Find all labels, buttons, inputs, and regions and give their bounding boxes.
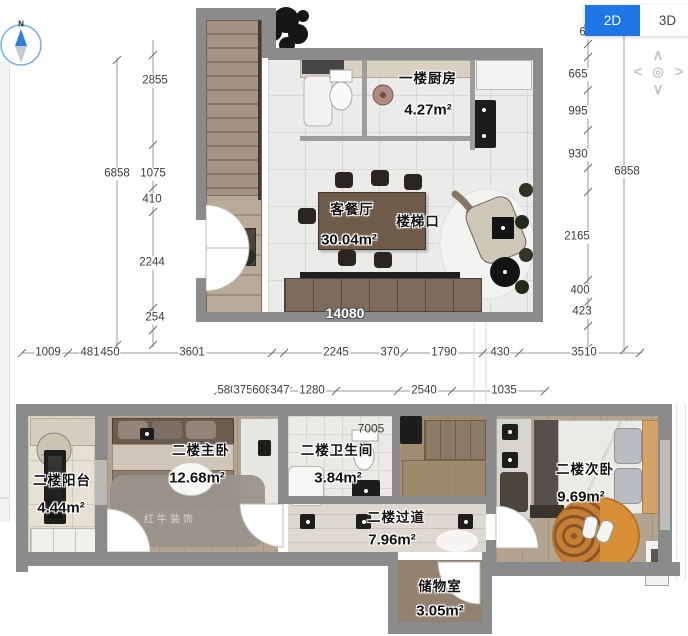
bedroom2-window	[660, 440, 670, 530]
dim: 1035	[490, 385, 518, 398]
dim: 430	[489, 347, 510, 360]
pan-center-button[interactable]: ◎	[652, 64, 663, 80]
dim: 370	[379, 347, 400, 360]
wall	[392, 416, 400, 502]
wall	[16, 404, 672, 416]
view-mode-toggle: 2D 3D	[585, 5, 688, 36]
dim-left-outer: 6858	[103, 168, 131, 181]
dim: 2540	[410, 385, 438, 398]
floorplan-canvas[interactable]: 一楼厨房 4.27m² 客餐厅 30.04m² 楼梯口 14080	[0, 0, 688, 636]
wall	[95, 416, 107, 460]
dim: 1790	[430, 347, 458, 360]
room-area-bathroom: 3.84m²	[314, 470, 362, 487]
dim: 930	[567, 149, 588, 162]
dim: 1075	[139, 168, 167, 181]
compass[interactable]	[0, 22, 46, 70]
pan-up-button[interactable]: ∧	[653, 46, 664, 64]
dim: 481	[79, 347, 100, 360]
wall	[388, 552, 398, 632]
wall	[16, 404, 28, 572]
room-area-master: 12.68m²	[169, 470, 225, 487]
room-label-balcony: 二楼阳台	[33, 469, 91, 489]
wall	[388, 622, 492, 634]
room-label-storage: 储物室	[418, 575, 462, 595]
wall	[492, 562, 680, 576]
compass-north-label: N	[18, 20, 24, 29]
room-area-balcony: 4.44m²	[37, 500, 85, 517]
dim: 400	[569, 285, 590, 298]
dim-right-outer: 6858	[613, 166, 641, 179]
view-2d-button[interactable]: 2D	[585, 5, 640, 36]
dim: 410	[141, 194, 162, 207]
room-label-master: 二楼主卧	[172, 439, 230, 459]
wall	[16, 552, 390, 566]
view-3d-button[interactable]: 3D	[640, 5, 688, 36]
dim: 995	[567, 106, 588, 119]
dim: 3601	[178, 347, 206, 360]
balcony-window	[95, 460, 107, 505]
room-area-bedroom2: 9.69m²	[557, 489, 605, 506]
dim: 254	[144, 312, 165, 325]
room-area-storage: 3.05m²	[416, 603, 464, 620]
dim: 2244	[138, 257, 166, 270]
pan-down-button[interactable]: ∨	[653, 80, 664, 98]
room-label-hallway: 二楼过道	[367, 506, 425, 526]
dim: 2165	[563, 231, 591, 244]
dim: 2855	[141, 75, 169, 88]
room-label-bathroom: 二楼卫生间	[301, 439, 374, 459]
dim: 375	[232, 385, 253, 398]
wall	[278, 416, 288, 504]
dim: 347	[269, 385, 290, 398]
wall	[283, 496, 486, 504]
pan-left-button[interactable]: <	[634, 64, 643, 81]
dim: 2245	[322, 347, 350, 360]
dim: 1009	[34, 347, 62, 360]
dim: 1280	[298, 385, 326, 398]
room-label-bedroom2: 二楼次卧	[556, 458, 614, 478]
wall	[95, 505, 107, 555]
wall	[482, 552, 492, 632]
room-area-hallway: 7.96m²	[368, 532, 416, 549]
dim: 665	[567, 69, 588, 82]
dim: 423	[571, 306, 592, 319]
dim-7005: 7005	[357, 423, 386, 436]
pan-right-button[interactable]: >	[675, 64, 684, 81]
wall	[486, 404, 496, 514]
dim: 3510	[570, 347, 598, 360]
dim: 450	[99, 347, 120, 360]
